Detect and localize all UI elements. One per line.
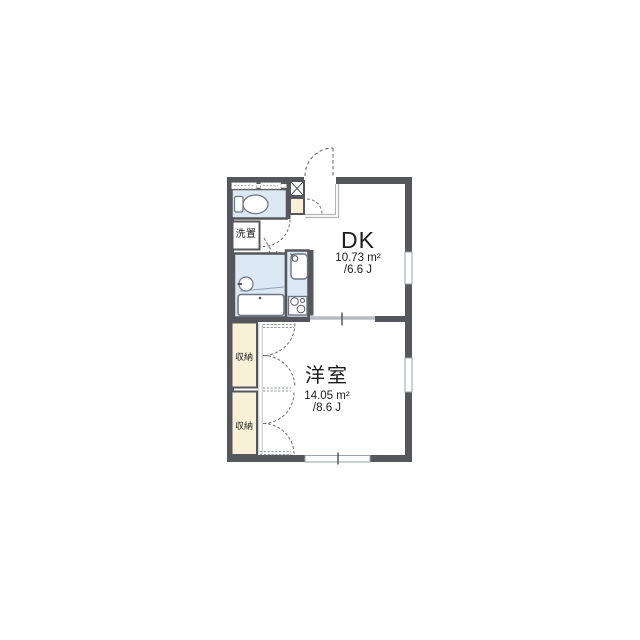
western-room-area-jo: /8.6 J — [291, 403, 363, 415]
floor-plan-drawing — [0, 0, 640, 640]
bathroom — [234, 254, 286, 318]
toilet-icon — [243, 195, 268, 214]
stove-burner-small-icon — [301, 299, 305, 303]
entrance — [290, 148, 339, 218]
toilet-tank-icon — [235, 197, 244, 213]
stove-burner-icon — [291, 298, 299, 306]
dk-area-jo: /6.6 J — [322, 265, 394, 277]
laundry-space-label: 洗置 — [233, 230, 259, 240]
closet-door-arc — [263, 393, 294, 424]
closet-door-arc — [263, 424, 294, 455]
top-wall-right-segment — [336, 177, 412, 184]
entry-closet-door-swing — [307, 199, 322, 214]
dk-room-label: DK — [327, 229, 389, 252]
sliding-door — [310, 313, 375, 326]
entrance-door-swing — [305, 148, 333, 176]
closet-top-label: 収納 — [231, 353, 257, 362]
western-room-window-band — [405, 358, 412, 392]
bathroom-door-direction-line — [264, 238, 271, 250]
closets — [232, 323, 296, 456]
dk-area-sqm: 10.73 m² — [322, 253, 394, 265]
entry-storage-box — [290, 198, 304, 214]
closet-door-arc — [263, 324, 295, 356]
western-room-area-sqm: 14.05 m² — [291, 391, 363, 403]
bathtub-drain-dot — [259, 297, 262, 300]
floor-plan-page: DK 10.73 m² /6.6 J 洋室 14.05 m² /8.6 J 洗置… — [0, 0, 640, 640]
closet-bottom-label: 収納 — [231, 422, 257, 431]
windows — [305, 252, 412, 465]
closet-double-door-swing — [263, 324, 295, 455]
western-room-label: 洋室 — [296, 366, 358, 386]
dk-window-band — [405, 252, 412, 284]
closet-door-arc — [263, 356, 295, 388]
right-wall — [405, 177, 412, 462]
toilet-room — [232, 183, 288, 219]
hatch-strips — [260, 325, 294, 455]
faucet-icon — [292, 256, 298, 262]
stove-burner-icon — [297, 305, 305, 313]
kitchen — [286, 251, 309, 319]
